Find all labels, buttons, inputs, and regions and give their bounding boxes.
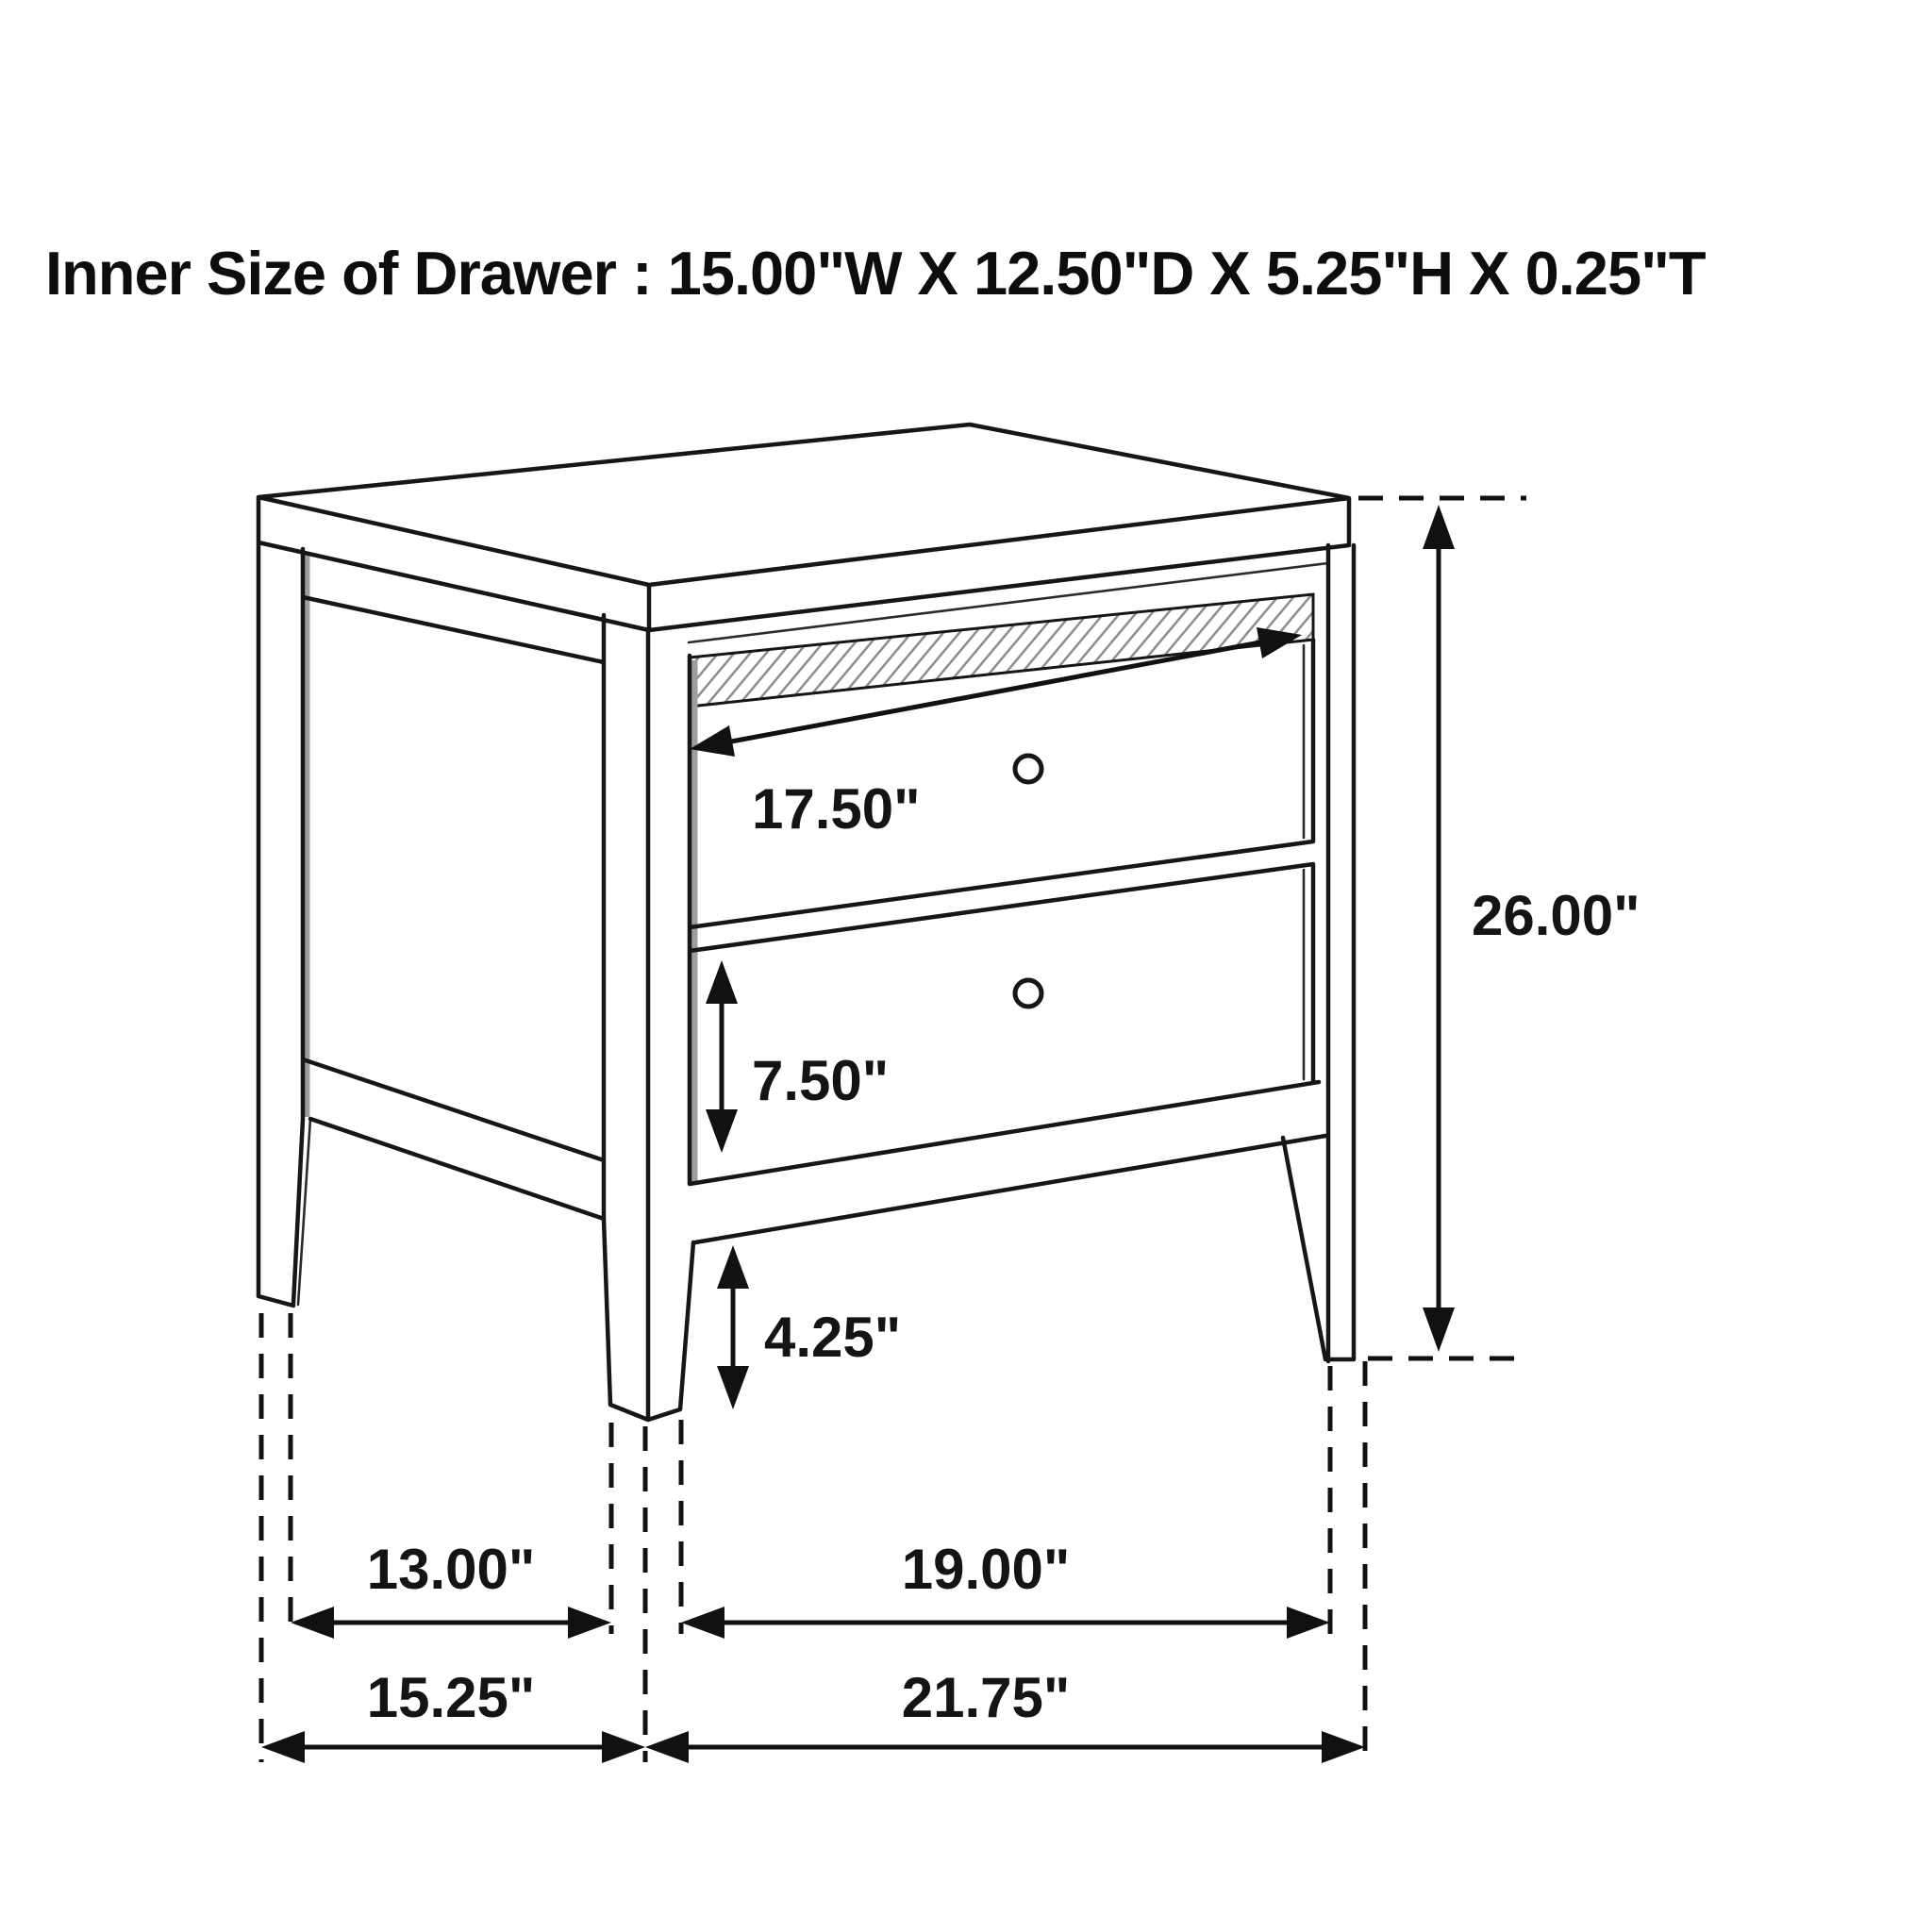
dim-label-drawer-front-width: 17.50" [752, 777, 921, 841]
dim-label-lower-drawer-height: 7.50" [752, 1049, 889, 1112]
dim-label-side-leg-clearance: 13.00" [367, 1538, 536, 1601]
dim-label-leg-height: 4.25" [764, 1306, 901, 1369]
dim-label-overall-height: 26.00" [1472, 884, 1641, 947]
dim-label-front-leg-clearance: 19.00" [902, 1538, 1071, 1601]
dimension-diagram-page: Inner Size of Drawer : 15.00"W X 12.50"D… [0, 0, 1932, 1932]
nightstand-dimension-diagram: Inner Size of Drawer : 15.00"W X 12.50"D… [0, 0, 1932, 1932]
dim-label-overall-width: 21.75" [902, 1666, 1071, 1729]
upper-drawer-knob [1015, 756, 1041, 782]
dim-label-overall-depth: 15.25" [367, 1666, 536, 1729]
lower-drawer-knob [1015, 980, 1041, 1007]
diagram-title: Inner Size of Drawer : 15.00"W X 12.50"D… [45, 239, 1706, 308]
